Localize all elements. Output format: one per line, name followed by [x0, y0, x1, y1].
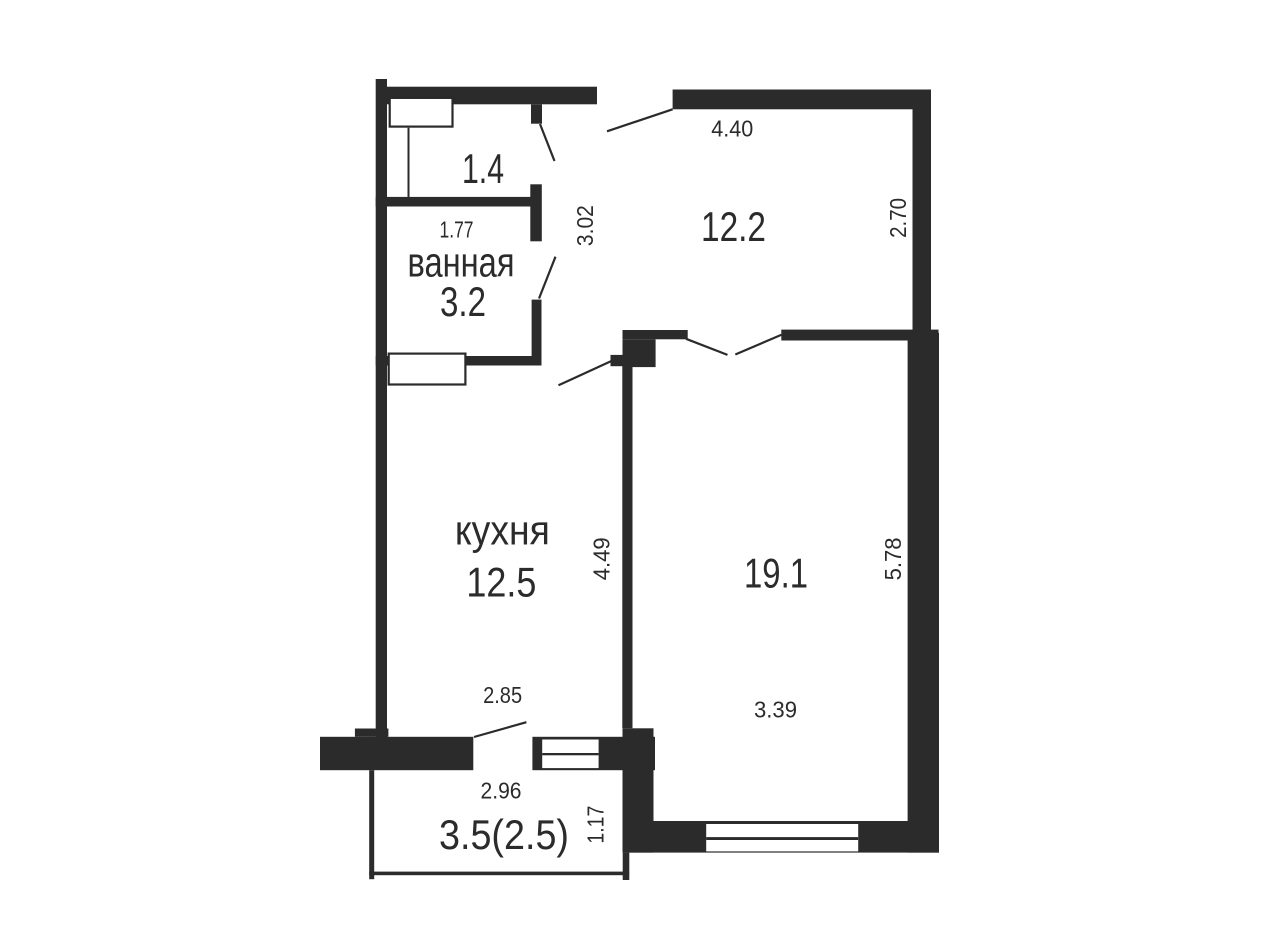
svg-text:2.70: 2.70: [885, 198, 911, 238]
svg-text:5.78: 5.78: [880, 537, 906, 580]
svg-text:12.2: 12.2: [701, 203, 766, 250]
svg-text:3.2: 3.2: [440, 278, 486, 325]
svg-text:3.5(2.5): 3.5(2.5): [439, 811, 569, 858]
svg-text:2.85: 2.85: [483, 682, 522, 708]
svg-text:3.02: 3.02: [572, 205, 598, 246]
svg-text:4.49: 4.49: [588, 537, 614, 580]
svg-text:1.77: 1.77: [440, 217, 474, 243]
svg-text:19.1: 19.1: [744, 550, 808, 597]
svg-text:2.96: 2.96: [481, 777, 522, 803]
svg-text:4.40: 4.40: [711, 115, 753, 141]
svg-text:кухня: кухня: [455, 506, 550, 553]
svg-text:1.4: 1.4: [462, 145, 504, 192]
svg-text:1.17: 1.17: [582, 806, 608, 844]
svg-text:3.39: 3.39: [754, 697, 797, 723]
svg-text:12.5: 12.5: [466, 559, 536, 606]
